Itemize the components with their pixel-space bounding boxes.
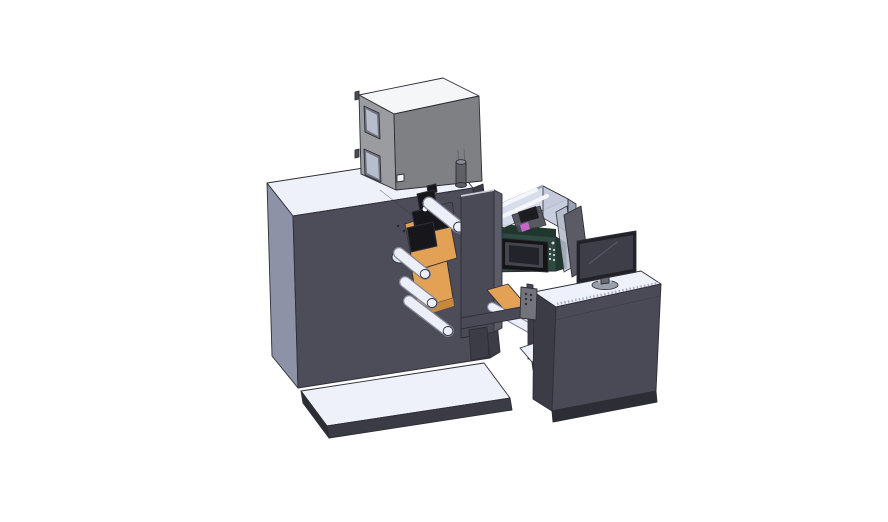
operator-desk (533, 271, 661, 422)
roller-cap (443, 327, 453, 336)
roller-cap (427, 299, 437, 308)
panel-round-button (551, 241, 555, 245)
machine-render (0, 0, 888, 522)
pendant-button (525, 298, 527, 300)
exhaust-knob-body (456, 162, 466, 185)
exhaust-knob-flange (456, 183, 467, 188)
vent-dot (553, 249, 555, 251)
print-head-block (407, 222, 437, 252)
panel-screw-dot (403, 230, 405, 232)
vent-dot (549, 253, 551, 255)
exhaust-knob-top (456, 160, 466, 165)
vent-dot (549, 248, 551, 250)
dryer-box (355, 78, 482, 190)
pendant-body (520, 287, 537, 320)
panel-screw-dot (397, 225, 399, 227)
dryer-box-hinge (355, 149, 359, 158)
pendant-button (525, 303, 527, 305)
touchscreen-face (509, 245, 539, 265)
pendant-button (530, 299, 532, 301)
pendant-button (525, 293, 527, 295)
roller-cap (420, 270, 430, 279)
dryer-box-latch (397, 174, 404, 182)
pendant-control (520, 284, 537, 320)
cad-render-stage (0, 0, 888, 522)
vent-dot (553, 254, 555, 256)
pendant-button (530, 294, 532, 296)
dryer-box-hinge (355, 91, 359, 100)
vent-dot (553, 259, 555, 261)
column-foot (469, 327, 489, 360)
cabinet-front-face (293, 188, 490, 388)
vent-dot (549, 258, 551, 260)
